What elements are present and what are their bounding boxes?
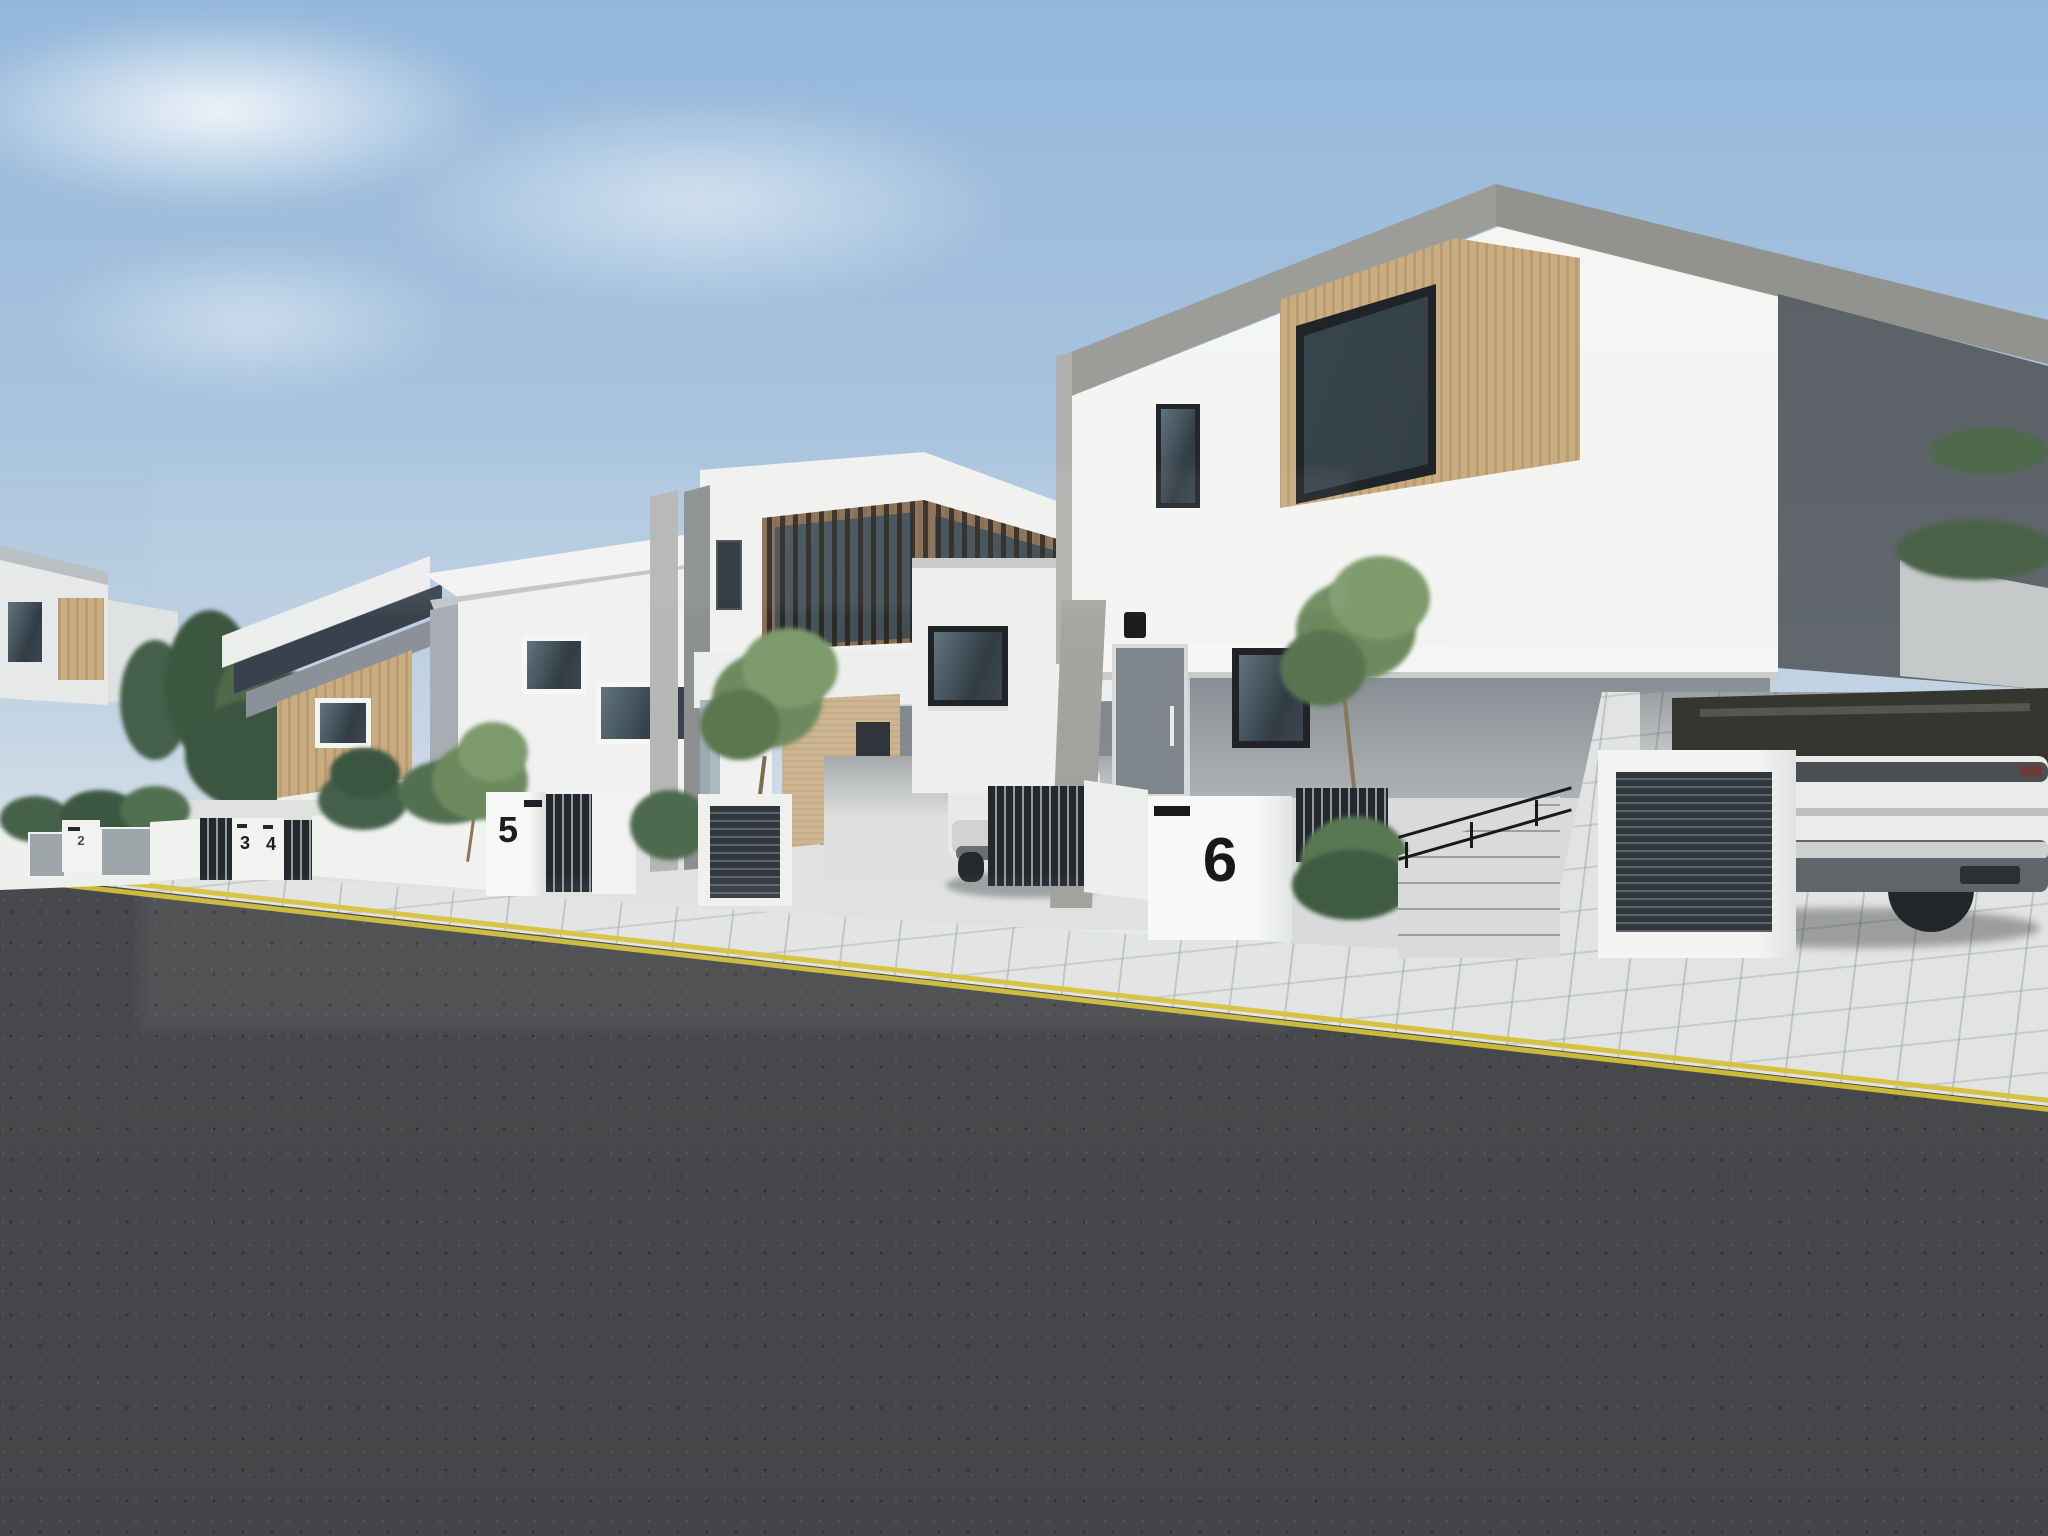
street-render-scene: 2 3 4 5 6 — [0, 0, 2048, 1536]
hedge — [1896, 520, 2048, 580]
letterbox-slot — [524, 800, 542, 807]
slatted-gate — [546, 794, 592, 892]
letterbox-slot — [1154, 806, 1190, 816]
tree-foliage — [700, 690, 780, 760]
suv-exhaust — [1960, 866, 2020, 884]
window — [527, 641, 581, 689]
hedge — [1292, 850, 1412, 920]
house-number: 4 — [258, 835, 284, 853]
window — [934, 632, 1002, 700]
house-number: 2 — [62, 834, 100, 847]
watermark-haze — [150, 470, 1350, 610]
cylinder-wall-light — [1124, 612, 1146, 638]
house-number: 5 — [486, 812, 550, 848]
window — [8, 602, 42, 662]
slatted-gate — [284, 820, 312, 880]
slatted-fence — [988, 786, 1084, 886]
tree-foliage — [1280, 630, 1366, 706]
suv-tail-light-right — [2020, 766, 2042, 776]
gate-panel — [28, 832, 66, 878]
wood-accent — [58, 598, 104, 680]
gate-panel — [100, 827, 152, 877]
house-number: 3 — [232, 834, 258, 852]
slatted-gate — [200, 818, 232, 880]
window-sill — [928, 706, 1008, 711]
hedge — [1930, 428, 2048, 474]
utility-box — [592, 794, 636, 894]
cloud — [380, 90, 1020, 310]
window — [320, 703, 366, 743]
sedan-wheel — [958, 852, 984, 882]
cloud — [40, 240, 460, 400]
door-handle — [1170, 706, 1174, 746]
tree-foliage — [458, 722, 528, 782]
railing-post — [1405, 842, 1408, 868]
letterbox-slot — [237, 824, 247, 828]
hedge — [330, 748, 400, 798]
railing-post — [1470, 822, 1473, 848]
louver-cabinet — [1616, 772, 1772, 932]
watermark-haze — [140, 880, 1290, 1030]
letterbox-slot — [263, 825, 273, 829]
letterbox-slot — [68, 827, 80, 831]
railing-post — [1535, 800, 1538, 826]
